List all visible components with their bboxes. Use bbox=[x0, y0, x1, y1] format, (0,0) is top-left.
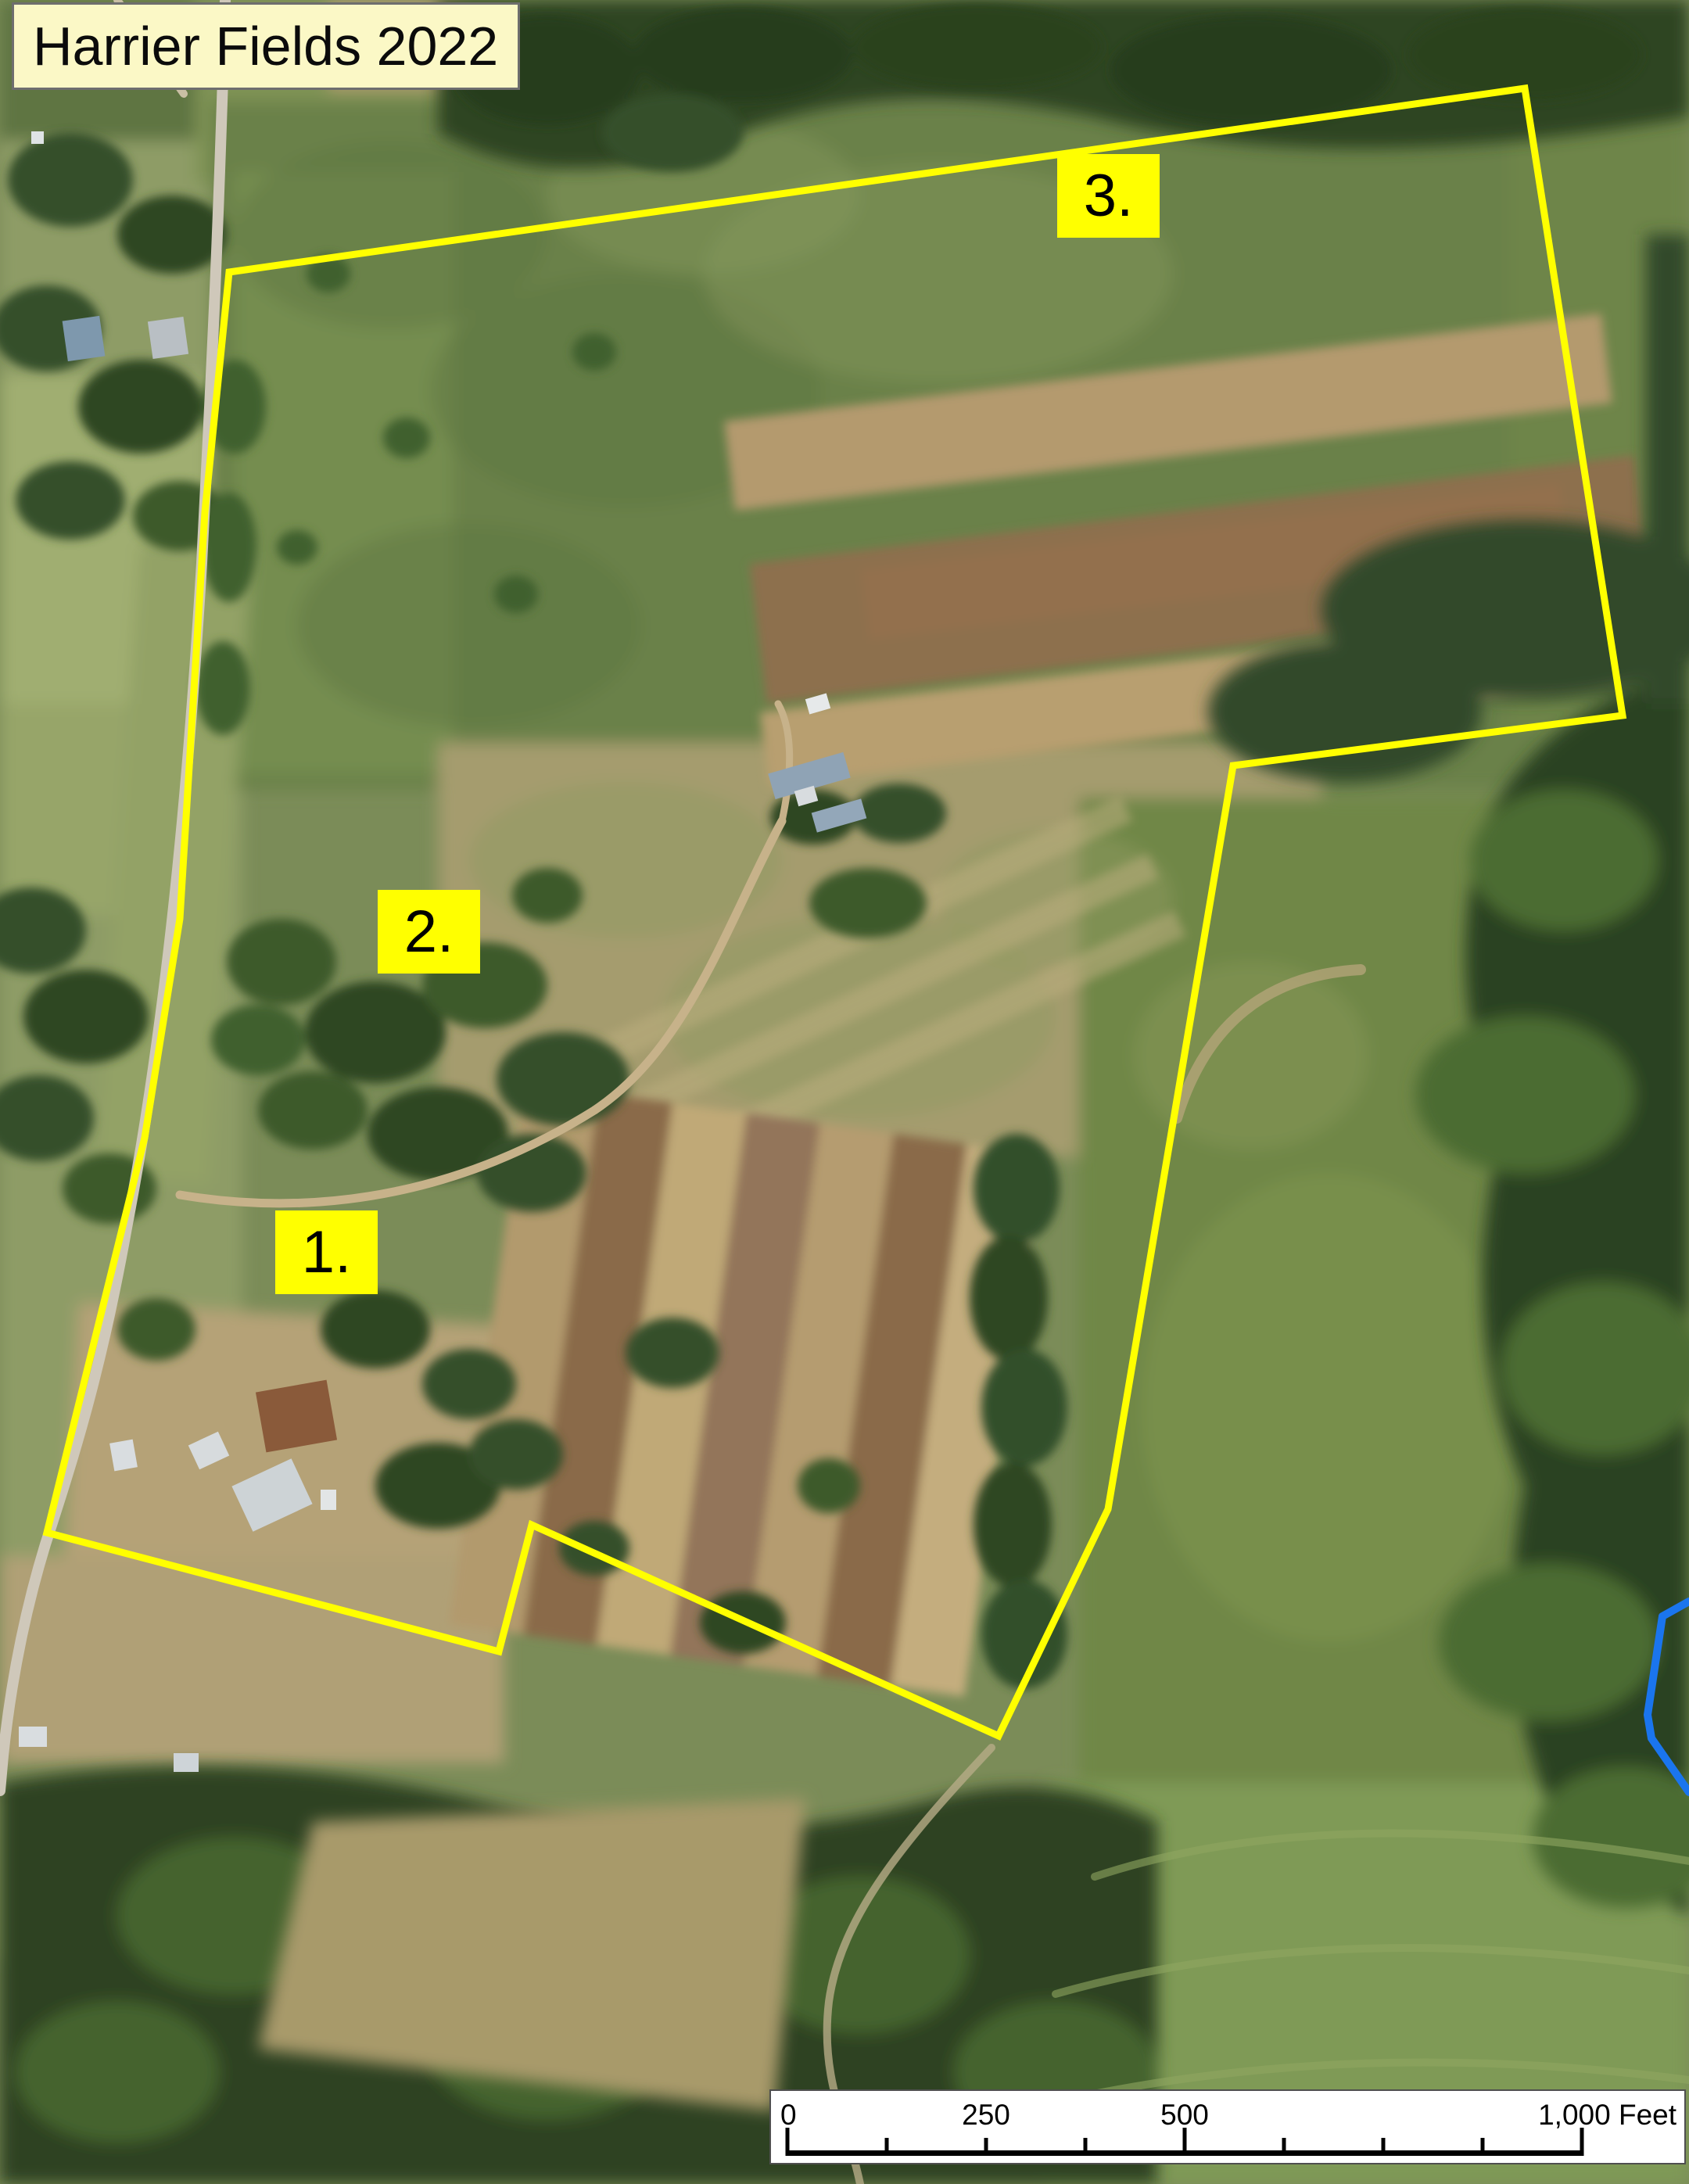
tree-blob bbox=[633, 8, 852, 102]
scale-bar: 0 250 500 1,000 Feet bbox=[769, 2089, 1686, 2164]
field-mottle bbox=[297, 524, 641, 727]
canopy-highlight bbox=[1415, 1017, 1634, 1173]
tree-blob bbox=[494, 576, 538, 613]
tree-blob bbox=[512, 868, 583, 923]
tree-blob bbox=[422, 1349, 516, 1419]
tree-blob bbox=[981, 1580, 1067, 1689]
shed bbox=[321, 1490, 336, 1510]
scale-tick bbox=[1282, 2138, 1286, 2156]
canopy-highlight bbox=[1470, 790, 1658, 931]
house bbox=[148, 317, 188, 359]
scale-ticks bbox=[787, 2123, 1582, 2156]
house bbox=[174, 1753, 199, 1772]
tree-blob bbox=[227, 919, 336, 1005]
scale-tick bbox=[984, 2138, 988, 2156]
tree-blob bbox=[852, 784, 946, 843]
scale-tick bbox=[1382, 2138, 1386, 2156]
house bbox=[19, 1727, 47, 1747]
scale-tick bbox=[1580, 2128, 1584, 2156]
tree-blob bbox=[117, 195, 227, 274]
tree-blob bbox=[78, 360, 203, 454]
bare-soil-patch bbox=[256, 1380, 337, 1453]
scale-tick bbox=[1183, 2128, 1187, 2156]
scale-tick bbox=[1084, 2138, 1088, 2156]
tree-blob bbox=[852, 4, 1103, 90]
tree-blob bbox=[23, 970, 149, 1063]
aerial-imagery bbox=[0, 0, 1689, 2184]
tree-blob bbox=[809, 868, 927, 938]
tree-blob bbox=[195, 641, 250, 735]
tree-blob bbox=[8, 133, 133, 227]
tree-blob bbox=[798, 1458, 860, 1513]
house bbox=[63, 316, 106, 361]
tree-blob bbox=[981, 1349, 1067, 1466]
field-mottle bbox=[1134, 962, 1368, 1149]
tree-blob bbox=[383, 418, 430, 458]
shed bbox=[31, 131, 44, 144]
field-label-3: 3. bbox=[1057, 154, 1160, 238]
tree-blob bbox=[497, 1032, 629, 1126]
tree-blob bbox=[117, 1298, 195, 1361]
tree-blob bbox=[974, 1462, 1052, 1587]
tree-blob bbox=[572, 333, 616, 371]
tree-blob bbox=[602, 94, 743, 172]
map-canvas: Harrier Fields 2022 1. 2. 3. 0 250 500 1… bbox=[0, 0, 1689, 2184]
tree-blob bbox=[626, 1318, 719, 1388]
canopy-highlight bbox=[1439, 1564, 1658, 1720]
tree-blob bbox=[321, 1290, 430, 1368]
tree-blob bbox=[974, 1134, 1060, 1243]
field-label-2: 2. bbox=[378, 890, 480, 974]
scale-tick bbox=[786, 2128, 790, 2156]
tree-blob bbox=[469, 1419, 563, 1490]
house bbox=[109, 1440, 138, 1472]
canopy-highlight bbox=[16, 2002, 219, 2143]
field-label-1: 1. bbox=[275, 1210, 378, 1294]
field-mottle bbox=[1142, 1173, 1517, 1642]
tree-blob bbox=[277, 530, 317, 565]
tree-blob bbox=[258, 1071, 368, 1149]
scale-tick bbox=[885, 2138, 889, 2156]
tree-blob bbox=[211, 1005, 305, 1075]
scale-tick bbox=[1481, 2138, 1485, 2156]
map-title: Harrier Fields 2022 bbox=[12, 2, 520, 90]
tree-blob bbox=[16, 461, 125, 540]
tree-blob bbox=[970, 1235, 1048, 1361]
tree-blob bbox=[1110, 16, 1392, 125]
